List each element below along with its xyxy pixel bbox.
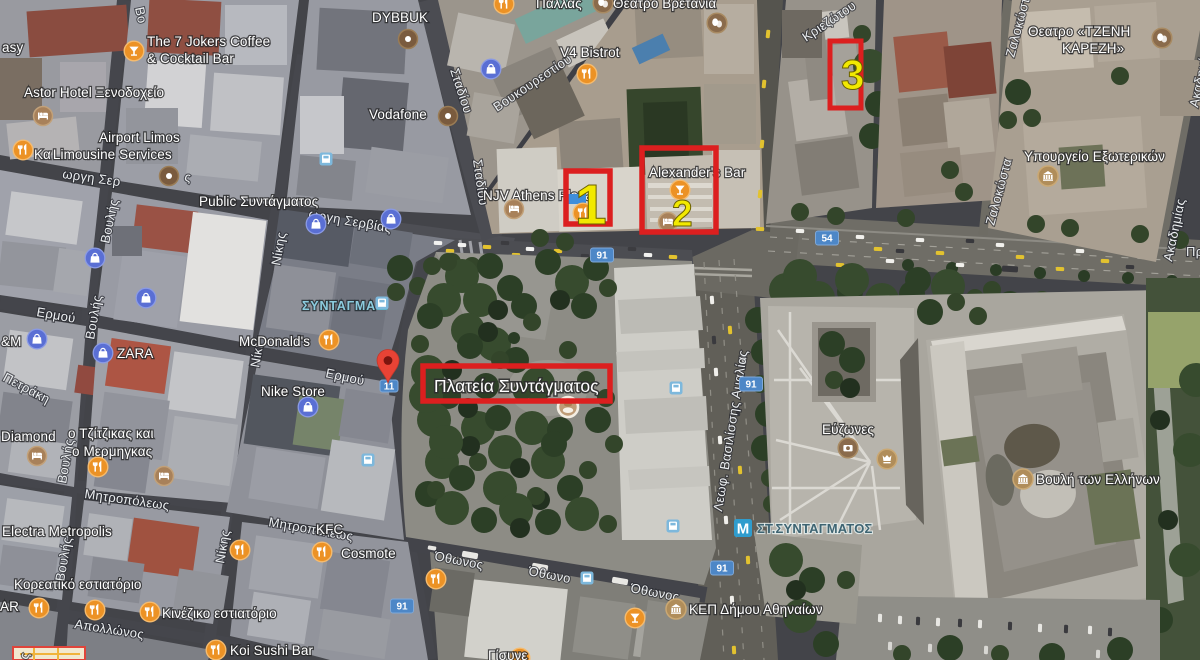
svg-text:Airport Limos: Airport Limos — [99, 130, 180, 145]
svg-text:Cosmote: Cosmote — [341, 546, 396, 561]
svg-text:91: 91 — [716, 564, 728, 575]
svg-text:ΣΤ.ΣΥΝΤΑΓΜΑΤΟΣ: ΣΤ.ΣΥΝΤΑΓΜΑΤΟΣ — [757, 521, 873, 536]
svg-text:Θέατρο Βρετάνια: Θέατρο Βρετάνια — [613, 0, 716, 11]
svg-text:91: 91 — [596, 251, 608, 262]
svg-text:ΣΥΝΤΑΓΜΑ: ΣΥΝΤΑΓΜΑ — [302, 299, 376, 313]
svg-text:11: 11 — [384, 381, 395, 392]
svg-text:Κινέζικο εστιατόριο: Κινέζικο εστιατόριο — [162, 606, 277, 621]
svg-text:Diamond: Diamond — [1, 429, 56, 444]
svg-text:54: 54 — [821, 234, 833, 245]
svg-text:Θεατρο «ΤΖΕΝΗ: Θεατρο «ΤΖΕΝΗ — [1028, 24, 1130, 39]
svg-text:Astor Hotel Ξενοδοχείο: Astor Hotel Ξενοδοχείο — [24, 85, 164, 100]
svg-text:Γίσυνε: Γίσυνε — [488, 648, 528, 660]
svg-text:Koi Sushi Bar: Koi Sushi Bar — [230, 643, 313, 658]
svg-text:3: 3 — [841, 51, 864, 98]
svg-text:Κορεατικό εστιατόριο: Κορεατικό εστιατόριο — [14, 577, 142, 592]
svg-text:Nike Store: Nike Store — [261, 384, 325, 399]
svg-text:The 7 Jokers Coffee: The 7 Jokers Coffee — [147, 34, 270, 49]
svg-text:Πρ: Πρ — [1186, 244, 1200, 259]
svg-text:AR: AR — [0, 599, 19, 614]
svg-text:91: 91 — [745, 380, 757, 391]
svg-text:ο Τζίτζικας και: ο Τζίτζικας και — [68, 426, 154, 441]
svg-text:McDonald's: McDonald's — [239, 334, 310, 349]
svg-text:Πλατεία Συντάγματος: Πλατεία Συντάγματος — [434, 376, 599, 396]
svg-text:Παλλάς: Παλλάς — [536, 0, 582, 11]
svg-text:ZARA: ZARA — [117, 346, 153, 361]
svg-text:& Cocktail Bar: & Cocktail Bar — [147, 51, 234, 66]
svg-text:&M: &M — [1, 334, 21, 349]
svg-text:ΚαLimousine Services: ΚαLimousine Services — [34, 147, 172, 162]
svg-text:KFC: KFC — [316, 522, 343, 537]
svg-text:ΚΑΡΕΖΗ»: ΚΑΡΕΖΗ» — [1062, 41, 1124, 56]
svg-text:asy: asy — [2, 40, 23, 55]
svg-text:V4 Bistrot: V4 Bistrot — [560, 45, 620, 60]
svg-text:Εύζωνες: Εύζωνες — [822, 422, 874, 437]
svg-text:Υπουργείο Εξωτερικών: Υπουργείο Εξωτερικών — [1024, 149, 1165, 164]
svg-text:Alexander's Bar: Alexander's Bar — [649, 165, 746, 180]
svg-text:Public Συντάγματος: Public Συντάγματος — [199, 194, 319, 209]
svg-text:ο Μερμηγκας: ο Μερμηγκας — [72, 444, 153, 459]
svg-text:DYBBUK: DYBBUK — [372, 10, 428, 25]
svg-text:Vodafone: Vodafone — [369, 107, 427, 122]
svg-text:2: 2 — [672, 193, 693, 234]
svg-text:1: 1 — [575, 173, 607, 237]
svg-text:ΚΕΠ Δήμου Αθηναίων: ΚΕΠ Δήμου Αθηναίων — [689, 602, 823, 617]
svg-text:Βουλή των Ελλήνων: Βουλή των Ελλήνων — [1036, 472, 1160, 487]
svg-text:91: 91 — [396, 602, 408, 613]
svg-text:Electra Metropolis: Electra Metropolis — [2, 524, 112, 539]
